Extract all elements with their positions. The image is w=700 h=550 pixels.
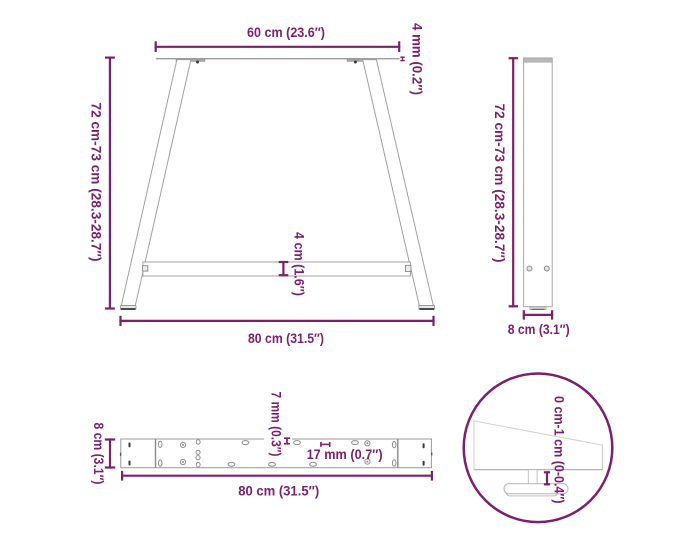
- svg-text:72 cm-73 cm (28.3-28.7″): 72 cm-73 cm (28.3-28.7″): [492, 104, 507, 263]
- svg-text:4 mm (0.2″): 4 mm (0.2″): [410, 23, 425, 95]
- svg-text:8 cm (3.1″): 8 cm (3.1″): [91, 423, 106, 485]
- svg-text:60 cm (23.6″): 60 cm (23.6″): [247, 25, 325, 40]
- svg-text:4 cm (1.6″): 4 cm (1.6″): [292, 232, 307, 296]
- svg-text:7 mm (0.3″): 7 mm (0.3″): [269, 392, 284, 457]
- svg-text:0 cm-1 cm (0-0.4″): 0 cm-1 cm (0-0.4″): [552, 396, 567, 504]
- svg-text:8 cm (3.1″): 8 cm (3.1″): [508, 322, 570, 337]
- svg-text:17 mm (0.7″): 17 mm (0.7″): [307, 447, 383, 462]
- svg-text:72 cm-73 cm (28.3-28.7″): 72 cm-73 cm (28.3-28.7″): [88, 103, 103, 262]
- svg-text:80 cm (31.5″): 80 cm (31.5″): [248, 331, 324, 346]
- svg-text:80 cm (31.5″): 80 cm (31.5″): [238, 484, 319, 499]
